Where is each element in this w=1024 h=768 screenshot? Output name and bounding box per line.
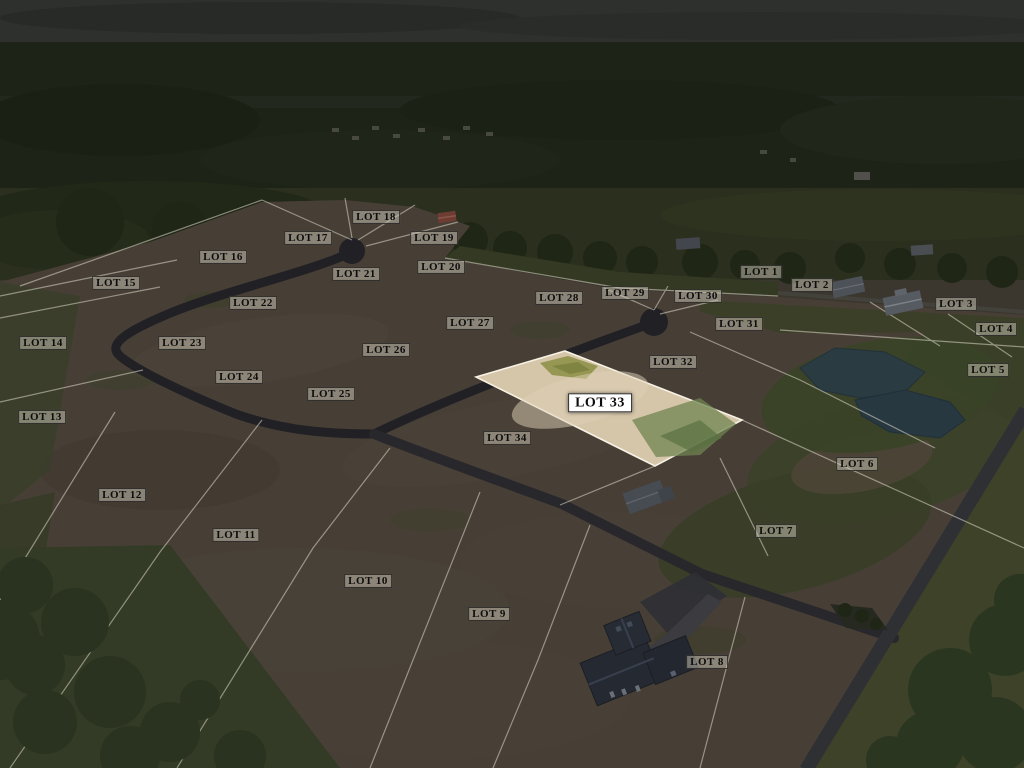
grass-speck-4 bbox=[390, 508, 470, 532]
aerial-lot-map: LOT 1LOT 2LOT 3LOT 4LOT 5LOT 6LOT 7LOT 8… bbox=[0, 0, 1024, 768]
aerial-photo-scene bbox=[0, 0, 1024, 768]
cul-de-sac-east bbox=[640, 308, 668, 336]
house-treeline-2 bbox=[911, 244, 934, 256]
house-treeline-1 bbox=[676, 237, 701, 250]
cul-de-sac-north bbox=[339, 238, 365, 264]
forest-band bbox=[0, 42, 1024, 192]
grass-speck-2 bbox=[510, 321, 570, 339]
house-far-field bbox=[854, 172, 870, 180]
